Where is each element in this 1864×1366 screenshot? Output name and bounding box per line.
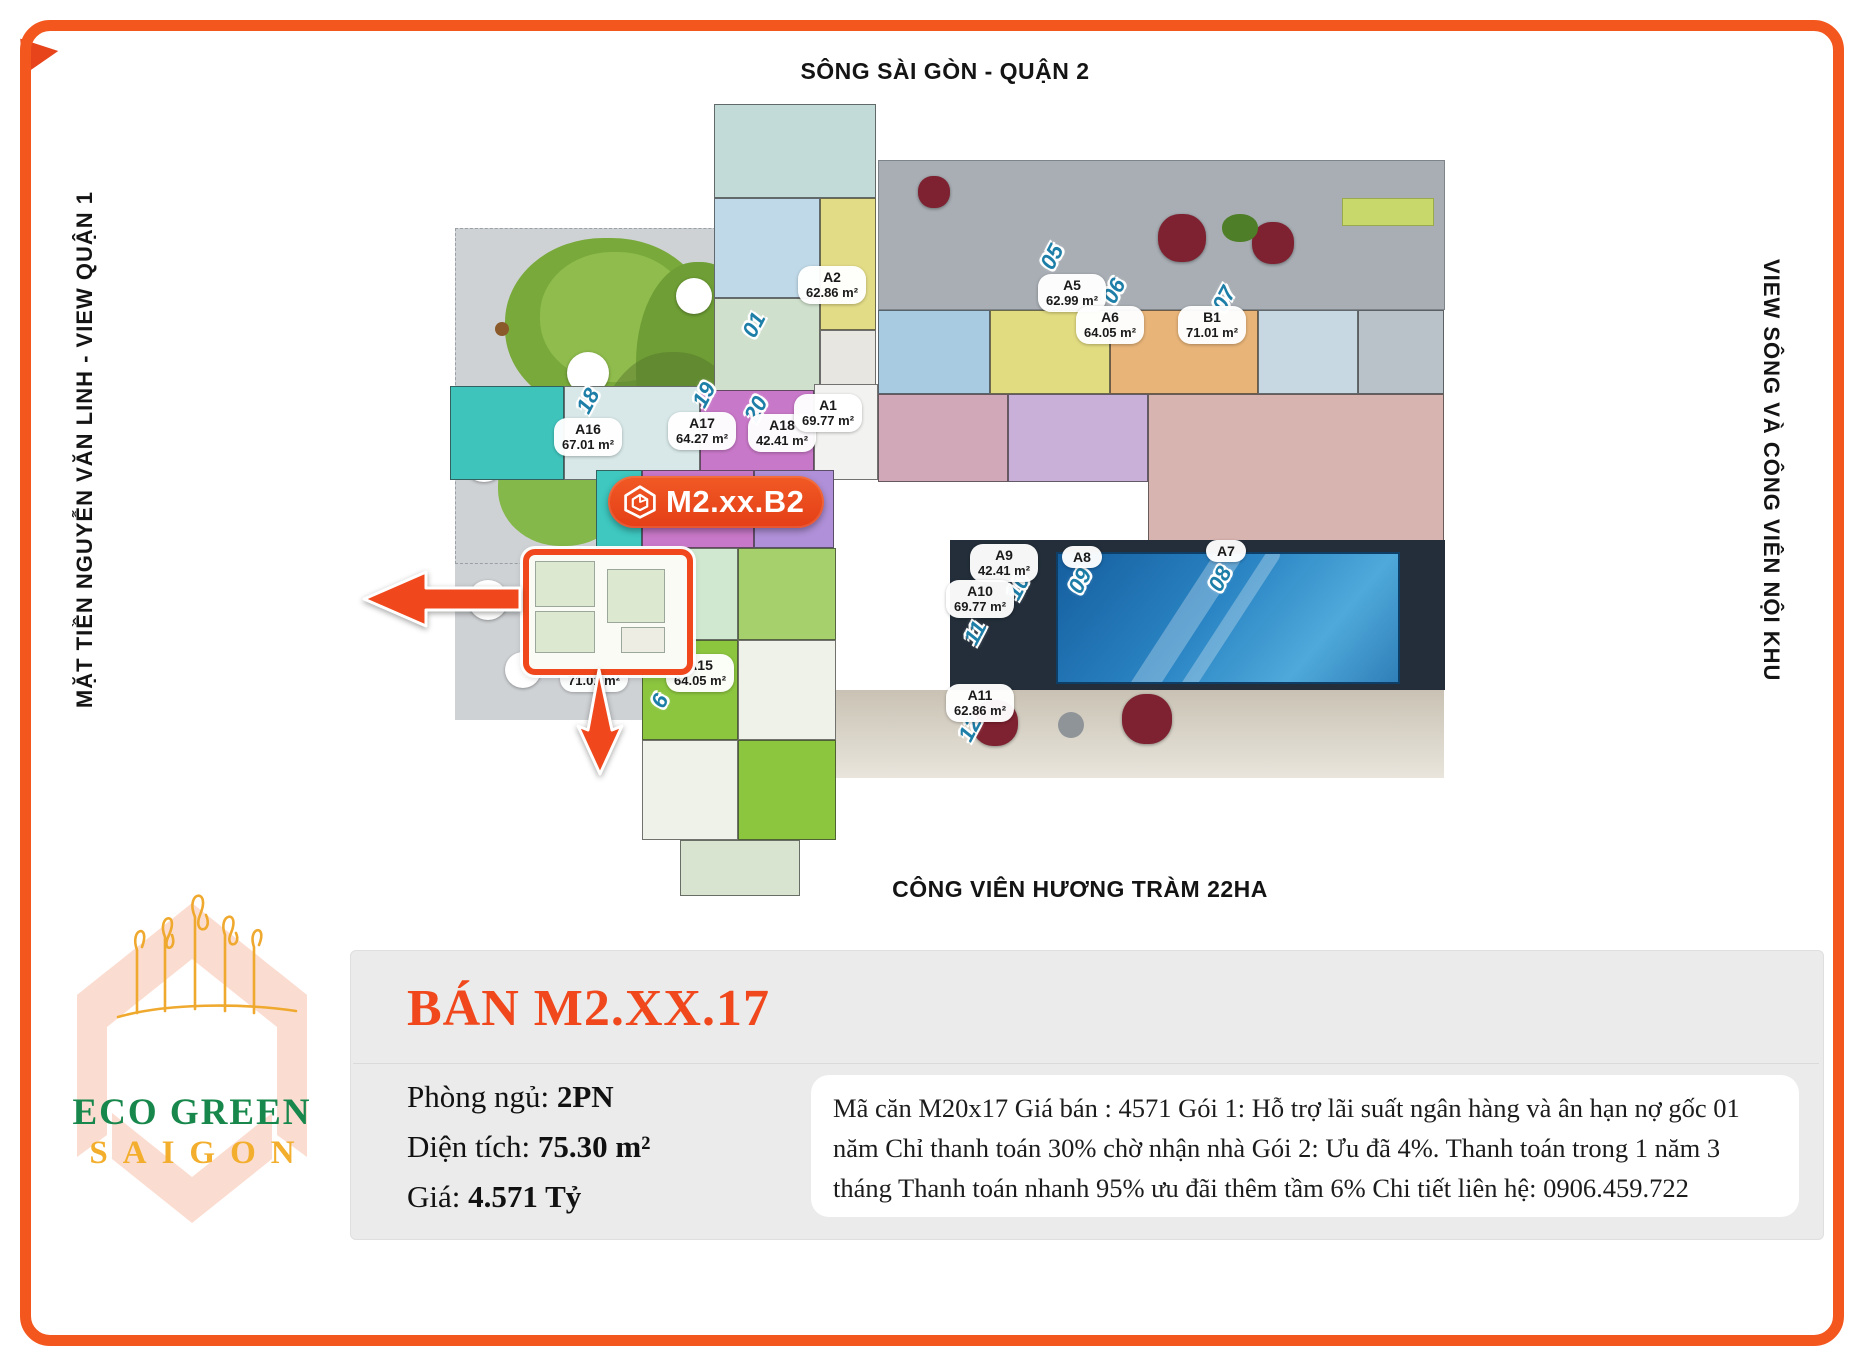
building-block	[642, 740, 738, 840]
unit-id: A17	[676, 415, 728, 431]
unit-area: 64.27 m²	[676, 431, 728, 446]
red-umbrella-icon	[1122, 694, 1172, 744]
table-icon	[495, 322, 509, 336]
room	[535, 561, 595, 607]
building-block	[1148, 394, 1444, 560]
unit-area: 62.86 m²	[954, 703, 1006, 718]
unit-id: B1	[1186, 309, 1238, 325]
eco-green-logo: ECO GREEN SAIGON	[52, 795, 332, 1235]
arrow-down-icon	[574, 668, 626, 776]
bedrooms-label: Phòng ngủ:	[407, 1079, 549, 1114]
arrow-left-icon	[362, 570, 522, 628]
bedrooms-value: 2PN	[557, 1079, 614, 1114]
building-block	[1258, 310, 1358, 394]
unit-label-A6[interactable]: A6 64.05 m²	[1076, 306, 1144, 344]
price-value: 4.571 Tỷ	[468, 1179, 581, 1214]
area-row: Diện tích: 75.30 m²	[407, 1129, 650, 1165]
umbrella-icon	[676, 278, 712, 314]
logo-text-saigon: SAIGON	[52, 1135, 332, 1172]
listing-title: BÁN M2.XX.17	[407, 979, 770, 1038]
caption-nguyen-van-linh: MẶT TIỀN NGUYỄN VĂN LINH - VIEW QUẬN 1	[72, 191, 98, 708]
logo-text-eco-green: ECO GREEN	[52, 1091, 332, 1134]
eco-green-logo-icon	[622, 484, 658, 520]
unit-callout[interactable]: M2.xx.B2	[608, 476, 824, 528]
unit-id: A7	[1213, 543, 1239, 559]
caption-view-song: VIEW SÔNG VÀ CÔNG VIÊN NỘI KHU	[1758, 259, 1784, 681]
building-block	[1358, 310, 1444, 394]
callout-label: M2.xx.B2	[666, 484, 804, 520]
room	[535, 611, 595, 653]
bedrooms-row: Phòng ngủ: 2PN	[407, 1079, 614, 1115]
unit-label-A11[interactable]: A11 62.86 m²	[946, 684, 1014, 722]
building-block	[738, 740, 836, 840]
unit-area: 71.01 m²	[1186, 325, 1238, 340]
divider	[353, 1063, 1819, 1064]
unit-id: A11	[954, 687, 1006, 703]
area-label: Diện tích:	[407, 1129, 530, 1164]
unit-id: A5	[1046, 277, 1098, 293]
unit-label-A10[interactable]: A10 69.77 m²	[946, 580, 1014, 618]
red-umbrella-icon	[1252, 222, 1294, 264]
red-umbrella-icon	[918, 176, 950, 208]
building-block	[714, 298, 820, 398]
caption-right-wrap: VIEW SÔNG VÀ CÔNG VIÊN NỘI KHU	[1748, 120, 1794, 820]
listing-panel: BÁN M2.XX.17 Phòng ngủ: 2PN Diện tích: 7…	[350, 950, 1824, 1240]
building-block	[820, 198, 876, 330]
building-block	[738, 548, 836, 640]
price-label: Giá:	[407, 1179, 460, 1214]
unit-label-A8[interactable]: A8	[1062, 546, 1102, 568]
caption-saigon-river: SÔNG SÀI GÒN - QUẬN 2	[440, 58, 1450, 85]
unit-area: 69.77 m²	[954, 599, 1006, 614]
unit-id: A1	[802, 397, 854, 413]
selected-unit-highlight[interactable]	[523, 549, 693, 675]
unit-id: A16	[562, 421, 614, 437]
floorplan: 18 19 20 01 05 06 07 10 09 08 11 12 6 A2…	[0, 0, 1864, 930]
page: SÔNG SÀI GÒN - QUẬN 2 MẶT TIỀN NGUYỄN VĂ…	[0, 0, 1864, 1366]
unit-id: A10	[954, 583, 1006, 599]
unit-label-A16[interactable]: A16 67.01 m²	[554, 418, 622, 456]
building-block	[878, 394, 1008, 482]
building-block	[878, 310, 990, 394]
building-block	[714, 104, 876, 198]
unit-area: 42.41 m²	[978, 563, 1030, 578]
room	[607, 569, 665, 623]
unit-area: 62.86 m²	[806, 285, 858, 300]
unit-label-A17[interactable]: A17 64.27 m²	[668, 412, 736, 450]
unit-area: 64.05 m²	[1084, 325, 1136, 340]
building-block	[738, 640, 836, 740]
room	[621, 627, 665, 653]
description-box: Mã căn M20x17 Giá bán : 4571 Gói 1: Hỗ t…	[811, 1075, 1799, 1217]
unit-id: A2	[806, 269, 858, 285]
building-block	[450, 386, 564, 480]
lawn-strip	[1342, 198, 1434, 226]
unit-id: A8	[1069, 549, 1095, 565]
planter-icon	[1058, 712, 1084, 738]
unit-label-B1[interactable]: B1 71.01 m²	[1178, 306, 1246, 344]
unit-id: A6	[1084, 309, 1136, 325]
unit-area: 67.01 m²	[562, 437, 614, 452]
unit-label-A7[interactable]: A7	[1206, 540, 1246, 562]
red-umbrella-icon	[1158, 214, 1206, 262]
building-block	[1008, 394, 1148, 482]
unit-area: 42.41 m²	[756, 433, 808, 448]
price-row: Giá: 4.571 Tỷ	[407, 1179, 581, 1215]
area-value: 75.30 m²	[538, 1129, 651, 1164]
unit-area: 64.05 m²	[674, 673, 726, 688]
unit-id: A9	[978, 547, 1030, 563]
tree-blob	[1222, 214, 1258, 242]
unit-label-A9[interactable]: A9 42.41 m²	[970, 544, 1038, 582]
callout-tail	[10, 39, 59, 84]
caption-huong-tram-park: CÔNG VIÊN HƯƠNG TRÀM 22HA	[640, 876, 1520, 903]
unit-area: 69.77 m²	[802, 413, 854, 428]
unit-label-A1[interactable]: A1 69.77 m²	[794, 394, 862, 432]
caption-left-wrap: MẶT TIỀN NGUYỄN VĂN LINH - VIEW QUẬN 1	[62, 100, 108, 800]
description-text: Mã căn M20x17 Giá bán : 4571 Gói 1: Hỗ t…	[833, 1089, 1777, 1208]
unit-label-A2[interactable]: A2 62.86 m²	[798, 266, 866, 304]
